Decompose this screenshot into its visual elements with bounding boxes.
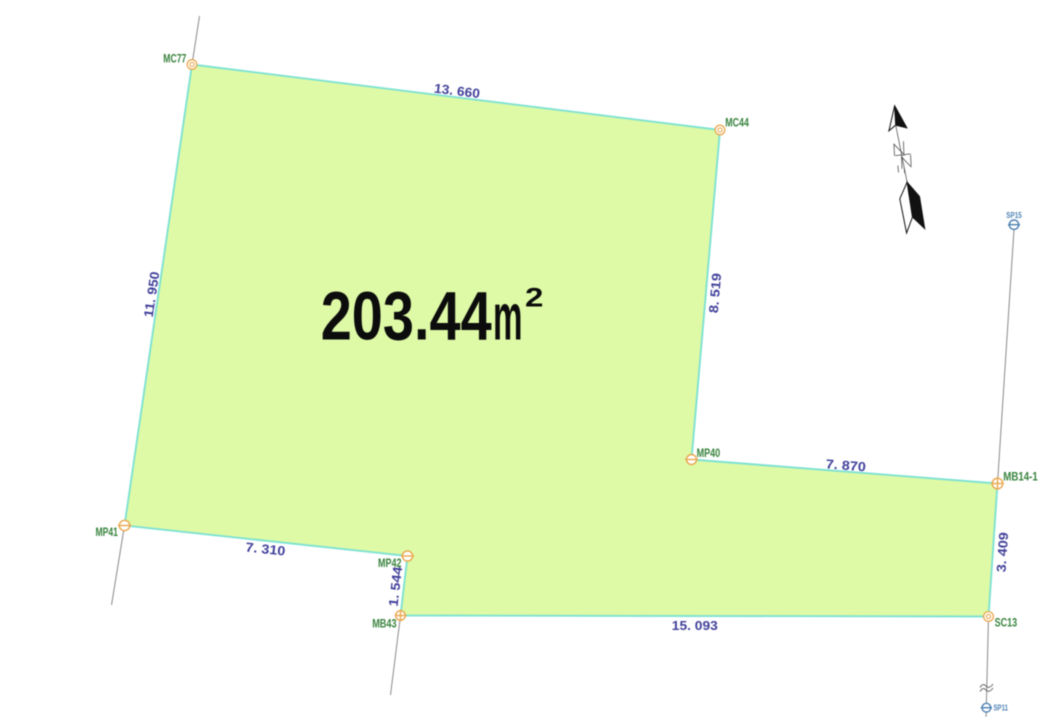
svg-text:SC13: SC13 [995,618,1018,630]
svg-text:SP11: SP11 [994,704,1009,713]
svg-text:MP41: MP41 [96,527,119,539]
svg-text:2: 2 [525,283,543,313]
svg-text:3. 409: 3. 409 [993,532,1011,573]
svg-text:7. 870: 7. 870 [825,456,866,474]
svg-text:MP40: MP40 [697,448,721,460]
svg-text:MC44: MC44 [725,118,749,130]
svg-text:MB43: MB43 [372,618,396,630]
svg-text:MC77: MC77 [163,53,186,65]
svg-text:7. 310: 7. 310 [245,539,286,558]
svg-text:MB14-1: MB14-1 [1003,471,1038,483]
svg-text:MP42: MP42 [378,558,402,570]
svg-text:15. 093: 15. 093 [672,618,718,633]
svg-text:8. 519: 8. 519 [706,273,724,314]
svg-text:m: m [493,281,523,354]
svg-text:SP15: SP15 [1006,211,1022,220]
svg-text:203.44: 203.44 [321,278,492,355]
